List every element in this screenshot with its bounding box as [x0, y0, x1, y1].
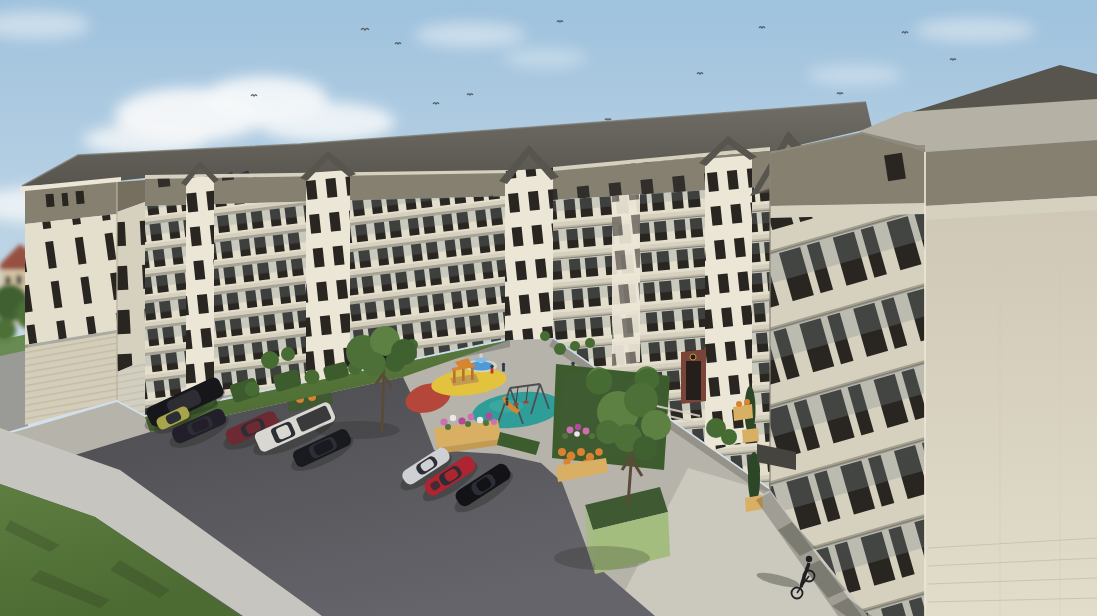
architectural-rendering — [0, 0, 1097, 616]
gable-bay-center — [499, 145, 559, 341]
left-block — [20, 177, 145, 425]
right-building — [770, 65, 1097, 616]
rendering-canvas — [0, 0, 1097, 616]
background-road — [0, 350, 28, 434]
gable-bay-1 — [181, 161, 219, 410]
entrance-portal-main — [681, 349, 706, 404]
